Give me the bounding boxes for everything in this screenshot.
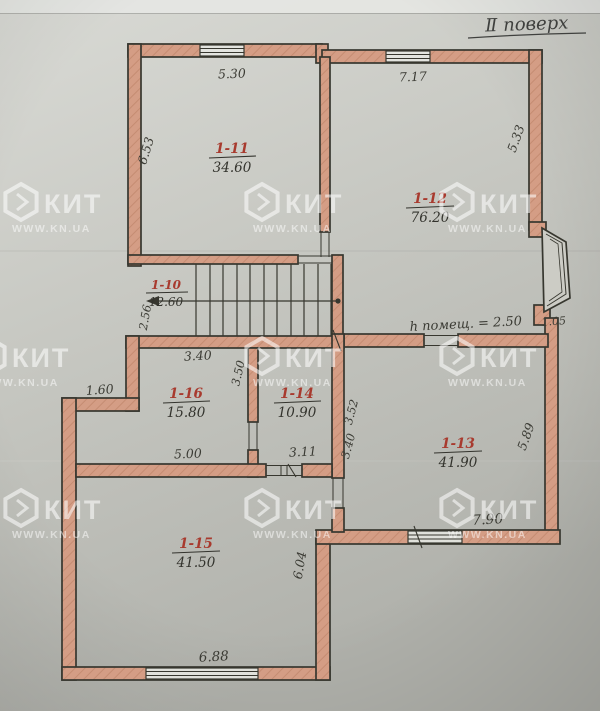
svg-text:WWW.KN.UA: WWW.KN.UA <box>12 223 91 235</box>
dim-room15-top-left: 5.00 <box>174 446 202 462</box>
page-title: Ⅱ поверх <box>484 13 569 37</box>
floor-plan-photo: Ⅱ поверх 1-11 34.60 1-12 76.20 1-10 12.6… <box>0 0 600 711</box>
svg-text:КИТ: КИТ <box>480 495 538 525</box>
svg-text:WWW.KN.UA: WWW.KN.UA <box>253 529 332 541</box>
svg-text:1-16: 1-16 <box>169 386 203 402</box>
window-top-left <box>200 45 244 56</box>
svg-text:1-10: 1-10 <box>151 278 182 292</box>
svg-text:КИТ: КИТ <box>480 343 538 373</box>
svg-text:41.50: 41.50 <box>176 555 216 571</box>
svg-text:КИТ: КИТ <box>44 495 102 525</box>
svg-text:КИТ: КИТ <box>285 189 343 219</box>
svg-text:WWW.KN.UA: WWW.KN.UA <box>253 223 332 235</box>
window-bottom <box>146 668 258 679</box>
dim-bay-side: 1.05 <box>541 314 566 329</box>
dim-top-right: 7.17 <box>399 69 427 85</box>
wall-1-15-top-left <box>76 464 266 477</box>
svg-text:WWW.KN.UA: WWW.KN.UA <box>0 377 59 389</box>
svg-text:WWW.KN.UA: WWW.KN.UA <box>448 377 527 389</box>
dim-room16-top: 3.40 <box>183 347 212 363</box>
svg-text:12.60: 12.60 <box>149 295 184 309</box>
floor-plan-drawing: Ⅱ поверх 1-11 34.60 1-12 76.20 1-10 12.6… <box>0 0 600 711</box>
dim-left-step: 1.60 <box>85 381 114 398</box>
dim-room15-top-right: 3.11 <box>288 443 317 459</box>
svg-text:WWW.KN.UA: WWW.KN.UA <box>448 223 527 235</box>
svg-text:1-13: 1-13 <box>441 436 475 452</box>
wall-mid-left <box>344 334 424 347</box>
svg-text:1-15: 1-15 <box>179 536 213 552</box>
svg-text:КИТ: КИТ <box>480 189 538 219</box>
svg-text:КИТ: КИТ <box>44 189 102 219</box>
svg-text:1-11: 1-11 <box>215 141 249 157</box>
partition-stairs-top <box>128 255 298 264</box>
svg-text:КИТ: КИТ <box>285 343 343 373</box>
svg-text:WWW.KN.UA: WWW.KN.UA <box>253 377 332 389</box>
wall-1-15-top-right <box>302 464 332 477</box>
wall-top-right <box>322 50 542 63</box>
dim-top-left: 5.30 <box>218 66 246 82</box>
wall-right-lower <box>545 318 558 532</box>
svg-text:КИТ: КИТ <box>285 495 343 525</box>
svg-text:15.80: 15.80 <box>167 405 206 421</box>
window-top-right <box>386 51 430 62</box>
svg-text:КИТ: КИТ <box>12 343 70 373</box>
svg-text:34.60: 34.60 <box>213 160 252 176</box>
wall-notch-right <box>316 532 330 680</box>
svg-text:10.90: 10.90 <box>278 405 317 421</box>
svg-text:41.90: 41.90 <box>438 455 478 471</box>
svg-text:WWW.KN.UA: WWW.KN.UA <box>12 529 91 541</box>
svg-text:WWW.KN.UA: WWW.KN.UA <box>448 529 527 541</box>
dim-bottom: 6.88 <box>198 648 229 666</box>
